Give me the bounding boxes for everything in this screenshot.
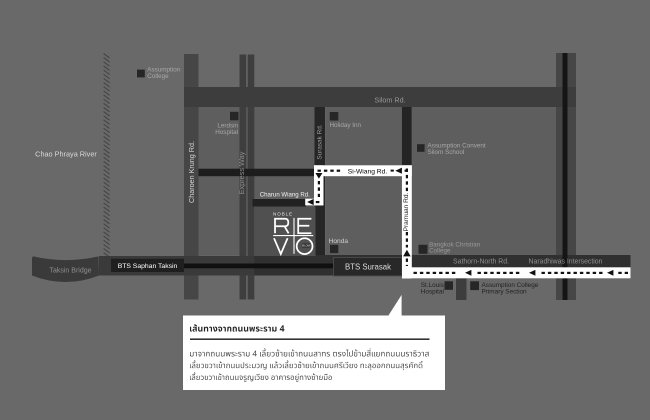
svg-text:Honda: Honda bbox=[329, 238, 349, 245]
svg-text:Chao Phraya River: Chao Phraya River bbox=[35, 150, 97, 159]
svg-text:Taksin Bridge: Taksin Bridge bbox=[49, 268, 91, 275]
svg-text:Express Way: Express Way bbox=[237, 151, 246, 194]
svg-text:Silom School: Silom School bbox=[428, 149, 465, 156]
svg-text:Primary Section: Primary Section bbox=[482, 288, 528, 295]
svg-text:Charoen Krung Rd.: Charoen Krung Rd. bbox=[187, 141, 196, 203]
svg-text:Hospital: Hospital bbox=[215, 129, 238, 136]
svg-text:BTS Surasak: BTS Surasak bbox=[345, 262, 391, 271]
svg-text:SILOM: SILOM bbox=[302, 244, 310, 248]
svg-text:Hospital: Hospital bbox=[421, 288, 444, 295]
svg-text:Holiday Inn: Holiday Inn bbox=[330, 122, 362, 129]
svg-text:Naradhiwas Intersection: Naradhiwas Intersection bbox=[529, 259, 603, 266]
svg-text:BTS Saphan Taksin: BTS Saphan Taksin bbox=[118, 263, 178, 270]
svg-text:Silom Rd.: Silom Rd. bbox=[374, 95, 405, 104]
svg-text:Sathorn-North Rd.: Sathorn-North Rd. bbox=[453, 259, 509, 266]
svg-text:Pramuan Rd.: Pramuan Rd. bbox=[403, 192, 410, 231]
svg-text:Surasak Rd.: Surasak Rd. bbox=[317, 124, 324, 159]
svg-text:College: College bbox=[147, 73, 169, 80]
svg-text:College: College bbox=[429, 248, 451, 255]
svg-text:NOBLE: NOBLE bbox=[273, 211, 293, 216]
svg-text:Charun Wiang Rd.: Charun Wiang Rd. bbox=[260, 191, 310, 198]
svg-text:Si-Wiang Rd.: Si-Wiang Rd. bbox=[348, 169, 388, 176]
